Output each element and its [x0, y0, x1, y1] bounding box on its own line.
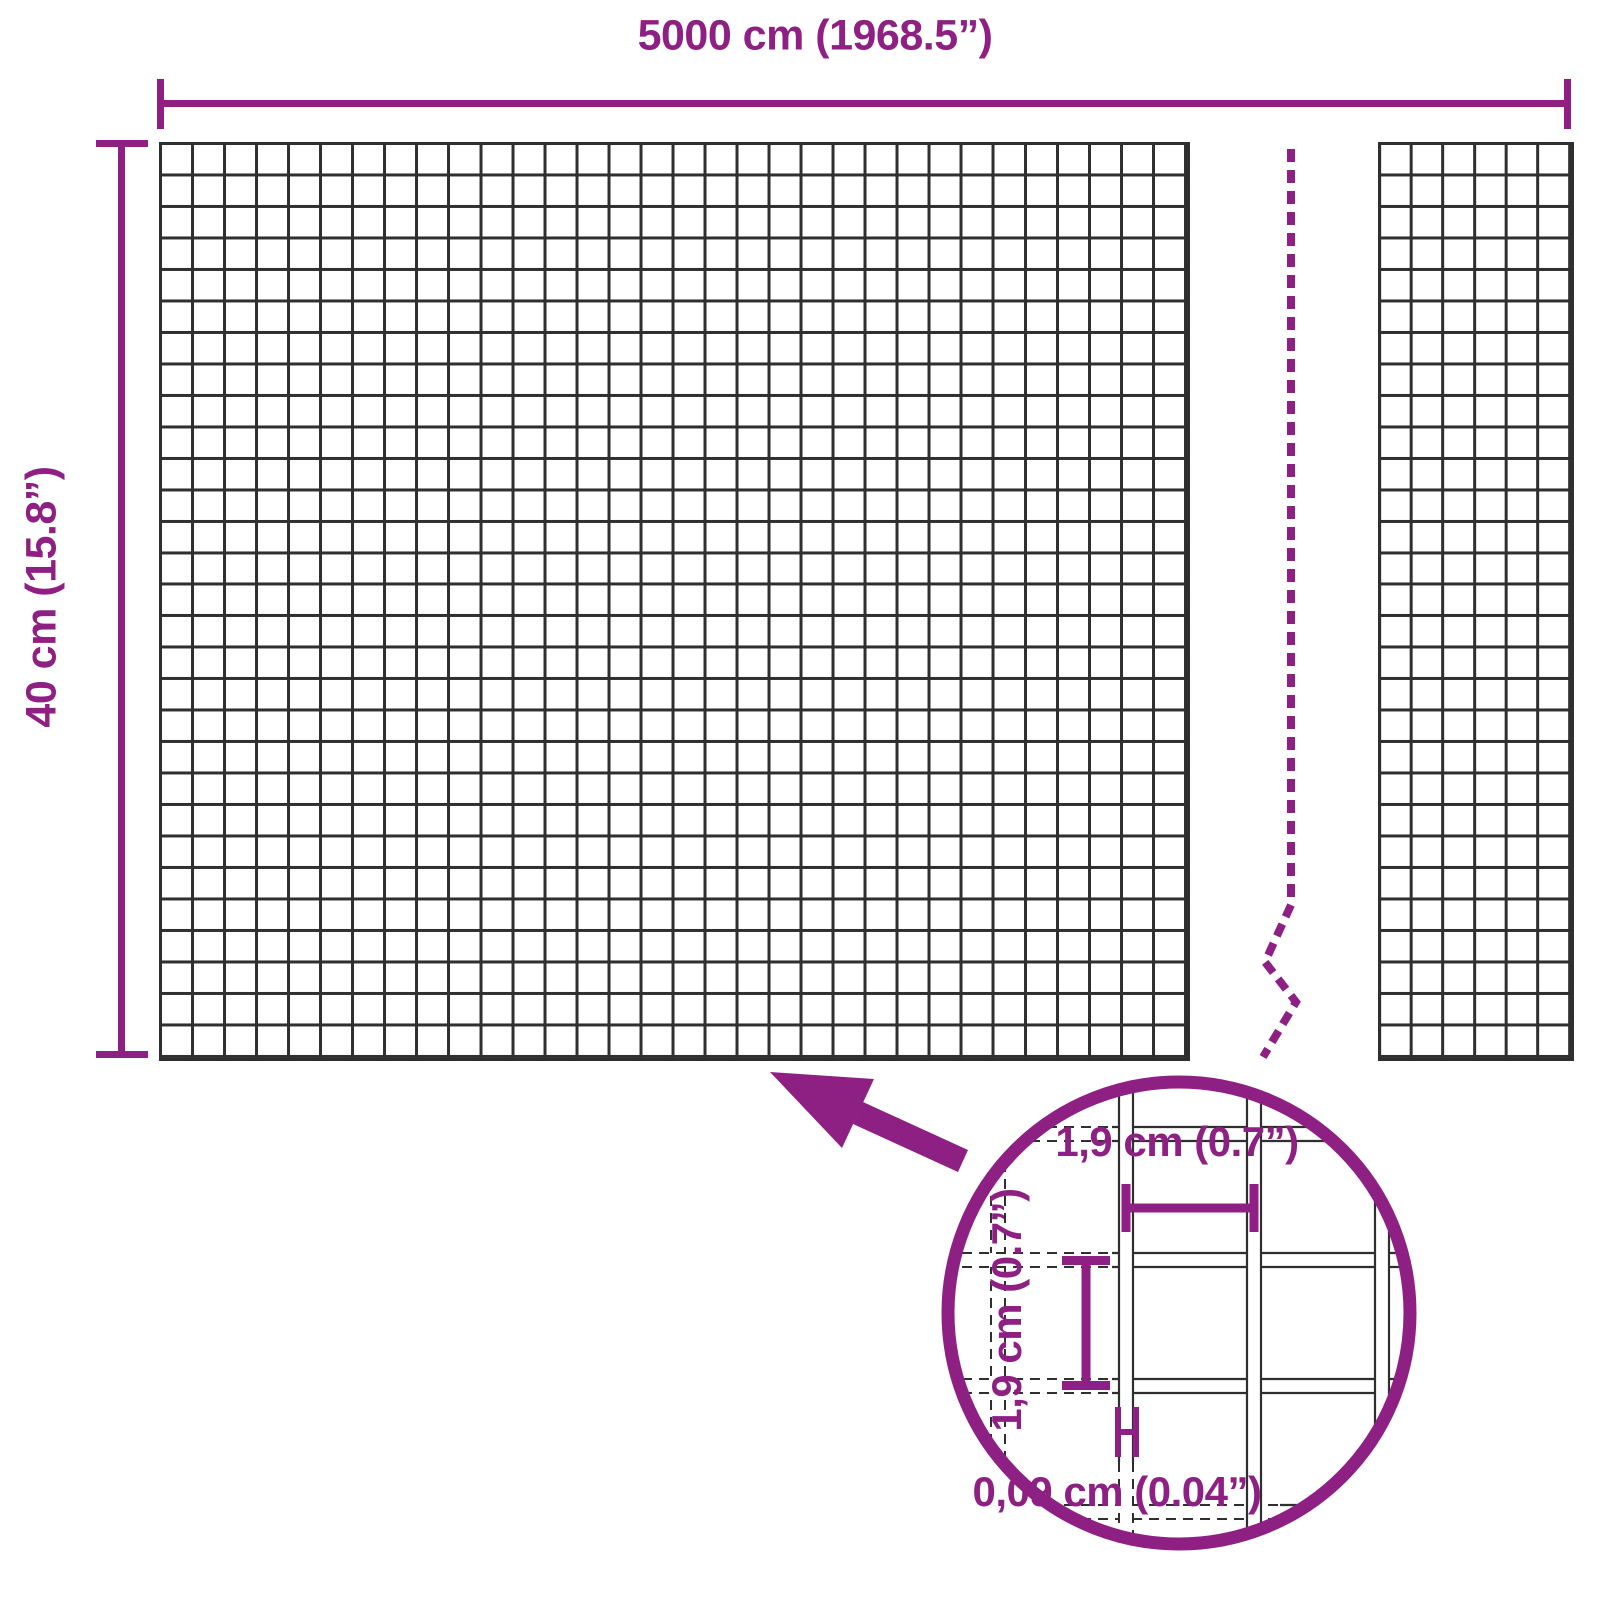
break-line: [1263, 149, 1296, 1057]
width-dimension-label: 5000 cm (1968.5”): [638, 13, 993, 58]
height-dimension-label: 40 cm (15.8”): [19, 466, 64, 727]
height-dimension-line: [96, 140, 148, 1058]
opening-height-bracket: [1062, 1256, 1110, 1390]
product-dimension-diagram: 5000 cm (1968.5”) 40 cm (15.8”) 1,9 cm (…: [0, 0, 1600, 1600]
width-dimension-line: [157, 79, 1571, 129]
wire-thickness-label: 0,09 cm (0.04”): [972, 1470, 1261, 1514]
pointer-arrow-icon: [770, 1072, 968, 1172]
opening-width-bracket: [1122, 1184, 1259, 1232]
opening-height-label: 1,9 cm (0.7”): [985, 1188, 1029, 1431]
diagram-graphics: [0, 0, 1600, 1600]
opening-width-label: 1,9 cm (0.7”): [1055, 1120, 1298, 1164]
